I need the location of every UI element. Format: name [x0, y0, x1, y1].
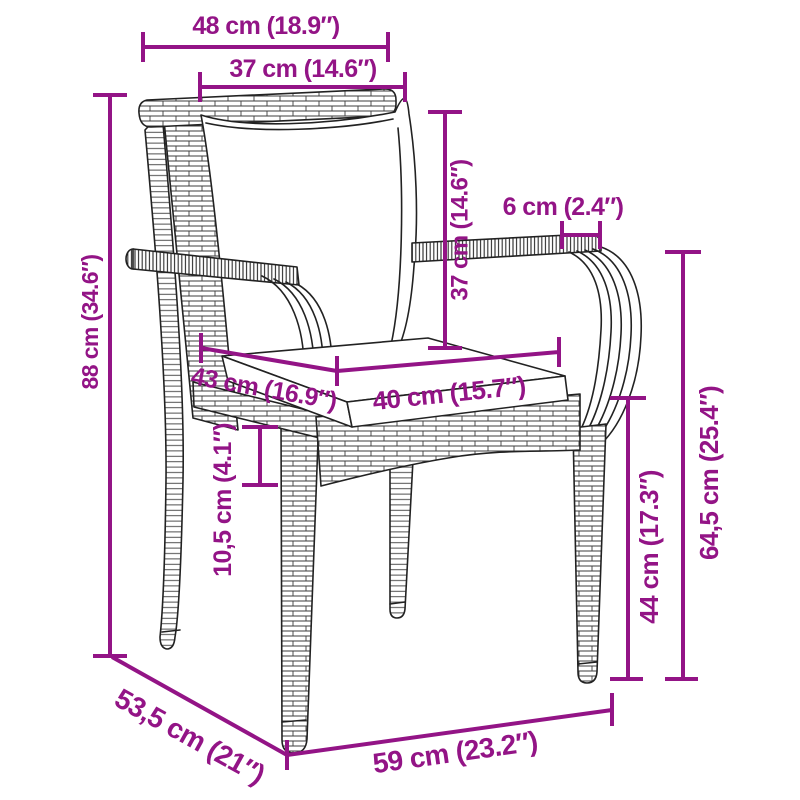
dimension-diagram: 48 cm (18.9″) 37 cm (14.6″) 6 cm (2.4″) …	[0, 0, 800, 800]
dim-label-88cm: 88 cm (34.6″)	[77, 255, 103, 390]
chair-frontleft-leg	[281, 414, 319, 753]
dim-label-37cm-vertical: 37 cm (14.6″)	[446, 159, 473, 300]
dim-line-10-5cm	[242, 427, 278, 485]
dim-label-44cm: 44 cm (17.3″)	[634, 470, 664, 624]
dim-label-6cm: 6 cm (2.4″)	[503, 193, 624, 221]
chair-frontright-leg	[573, 424, 606, 683]
chair-right-armrest	[412, 234, 601, 262]
dim-label-10-5cm: 10,5 cm (4.1″)	[209, 423, 237, 577]
dim-label-64-5cm: 64,5 cm (25.4″)	[694, 386, 724, 560]
diagram-canvas: 48 cm (18.9″) 37 cm (14.6″) 6 cm (2.4″) …	[0, 0, 800, 800]
dim-label-37cm-top: 37 cm (14.6″)	[229, 55, 377, 83]
chair-backright-leg	[390, 460, 413, 618]
chair-illustration	[126, 89, 641, 753]
dim-label-48cm: 48 cm (18.9″)	[192, 12, 340, 40]
